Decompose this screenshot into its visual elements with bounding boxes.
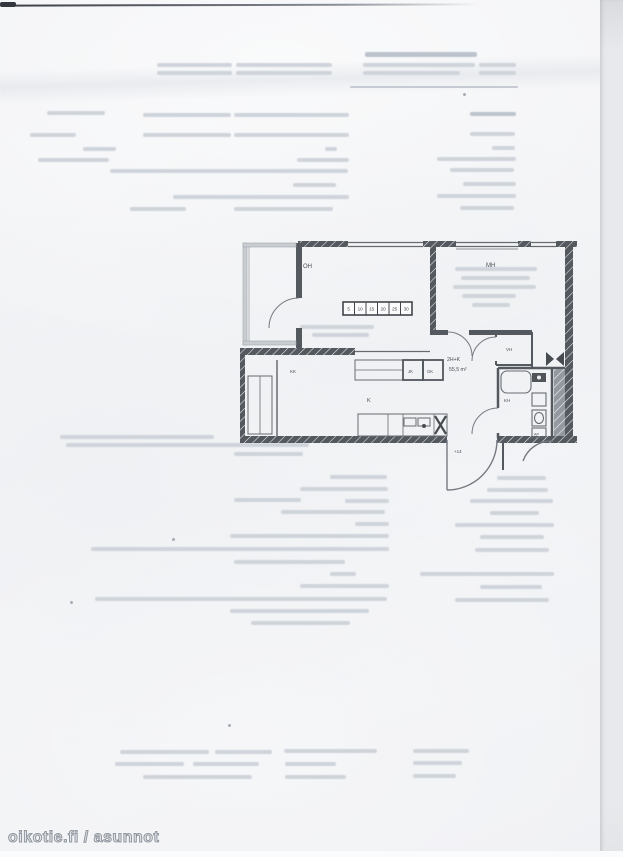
fridge-box [403,360,423,380]
ghost-text-line [234,560,345,564]
ghost-text-line [215,750,272,754]
scale-value: 15 [369,307,375,312]
ghost-text-line [236,71,332,75]
appliance-label-fridge: JK [408,369,413,374]
ghost-text-line [120,750,209,754]
ghost-text-line [234,133,349,137]
ghost-text-line [285,762,336,766]
scale-value: 5 [347,307,350,312]
ghost-text-line [450,168,514,172]
scale-value: 25 [392,307,398,312]
balcony-door-arc [269,298,299,328]
ghost-text-line [234,113,349,117]
faucet-dot [422,424,426,428]
ghost-text-line [47,111,105,115]
ghost-text-line [130,207,186,211]
ghost-text-line [236,63,332,67]
scale-value: 30 [404,307,410,312]
ghost-text-line [300,584,389,588]
ghost-text-line [285,775,346,779]
ghost-text-line [91,547,389,551]
room-label-kitchenette: KK [290,369,296,374]
wardrobe [248,376,272,434]
room-label-bedroom: MH [486,263,495,269]
entry-level-mark: +14 [454,449,462,454]
ghost-text-line [110,169,348,173]
ghost-text-line [413,774,456,778]
ghost-text-line [95,597,387,601]
unit-type-label: 2H+K [447,357,461,363]
ghost-text-line [363,71,460,75]
site-watermark: oikotie.fi / asunnot [8,829,159,847]
washing-machine [532,393,546,406]
ghost-text-line [413,749,469,753]
scale-bar: 5 10 15 20 25 30 [343,302,412,315]
appliance-label-freezer: GK [427,369,433,374]
ghost-text-line [173,195,349,199]
ghost-text-line [460,206,514,210]
ghost-text-line [475,548,549,552]
ghost-text-line [143,113,231,117]
ghost-text-line [60,435,214,439]
appliance-label-ap: AP [534,433,540,437]
room-label-closet: VH [506,347,512,352]
ghost-text-line [480,585,542,589]
scan-artifact-corner-blob [0,2,16,7]
ghost-text-line [350,86,518,88]
scale-value: 10 [358,307,364,312]
ghost-text-line [420,572,554,576]
ghost-text-line [115,762,184,766]
ghost-text-line [230,609,369,613]
ghost-text-line [157,63,232,67]
ghost-text-line [230,534,389,538]
ghost-text-line [413,761,462,765]
room-label-bathroom: KH [504,398,510,403]
ghost-text-line [463,182,516,186]
ghost-text-line [455,598,549,602]
ghost-text-line [455,523,554,527]
ghost-text-line [363,63,475,67]
floorplan-drawing: 5 10 15 20 25 30 OH MH K KK VH KH JK GK … [238,228,588,508]
ghost-text-line [30,133,76,137]
scan-speck [463,93,466,96]
ghost-text-line [293,183,336,187]
scanned-document-page: 5 10 15 20 25 30 OH MH K KK VH KH JK GK … [0,0,623,857]
bathroom-fixtures [501,371,546,437]
scale-value: 20 [381,307,387,312]
ghost-text-line [330,572,356,576]
page-edge-strip [600,0,623,857]
stairwell-door-arc [523,441,553,461]
ghost-text-line [470,132,515,136]
vent-symbol [546,352,564,366]
ghost-text-line [157,71,232,75]
sink-bowl [404,418,416,426]
ghost-text-line [365,52,477,57]
ghost-text-line [281,510,385,514]
door-arcs [269,298,553,490]
ghost-text-line [325,147,337,151]
unit-area-label: 55,5 m² [449,367,467,373]
ghost-text-line [251,621,350,625]
ghost-text-line [193,762,259,766]
room-label-kitchen: K [367,398,371,404]
front-door-arc [447,440,497,490]
scan-speck [228,724,231,727]
ghost-text-line [480,535,544,539]
ghost-text-line [490,511,539,515]
room-label-living: OH [303,264,312,270]
ghost-text-line [234,207,333,211]
scan-speck [172,538,175,541]
ghost-text-line [437,194,516,198]
ghost-text-line [492,146,515,150]
ghost-text-line [470,112,516,116]
stove-cross [435,416,446,434]
ghost-text-line [143,775,252,779]
scan-speck [70,601,73,604]
ghost-text-line [479,71,516,75]
bedroom-door-arc [448,332,472,356]
ghost-text-line [284,749,377,753]
scan-bottom-band [0,851,623,857]
balcony [243,243,296,345]
closet-door-arc [472,337,496,361]
ghost-text-line [143,133,231,137]
ghost-text-line [479,63,516,67]
ghost-text-line [38,158,109,162]
ghost-text-line [437,157,516,161]
ghost-text-line [297,158,349,162]
bathroom-door-arc [472,408,498,434]
ghost-text-line [83,147,116,151]
bathtub [501,371,531,393]
ghost-text-line [355,522,389,526]
